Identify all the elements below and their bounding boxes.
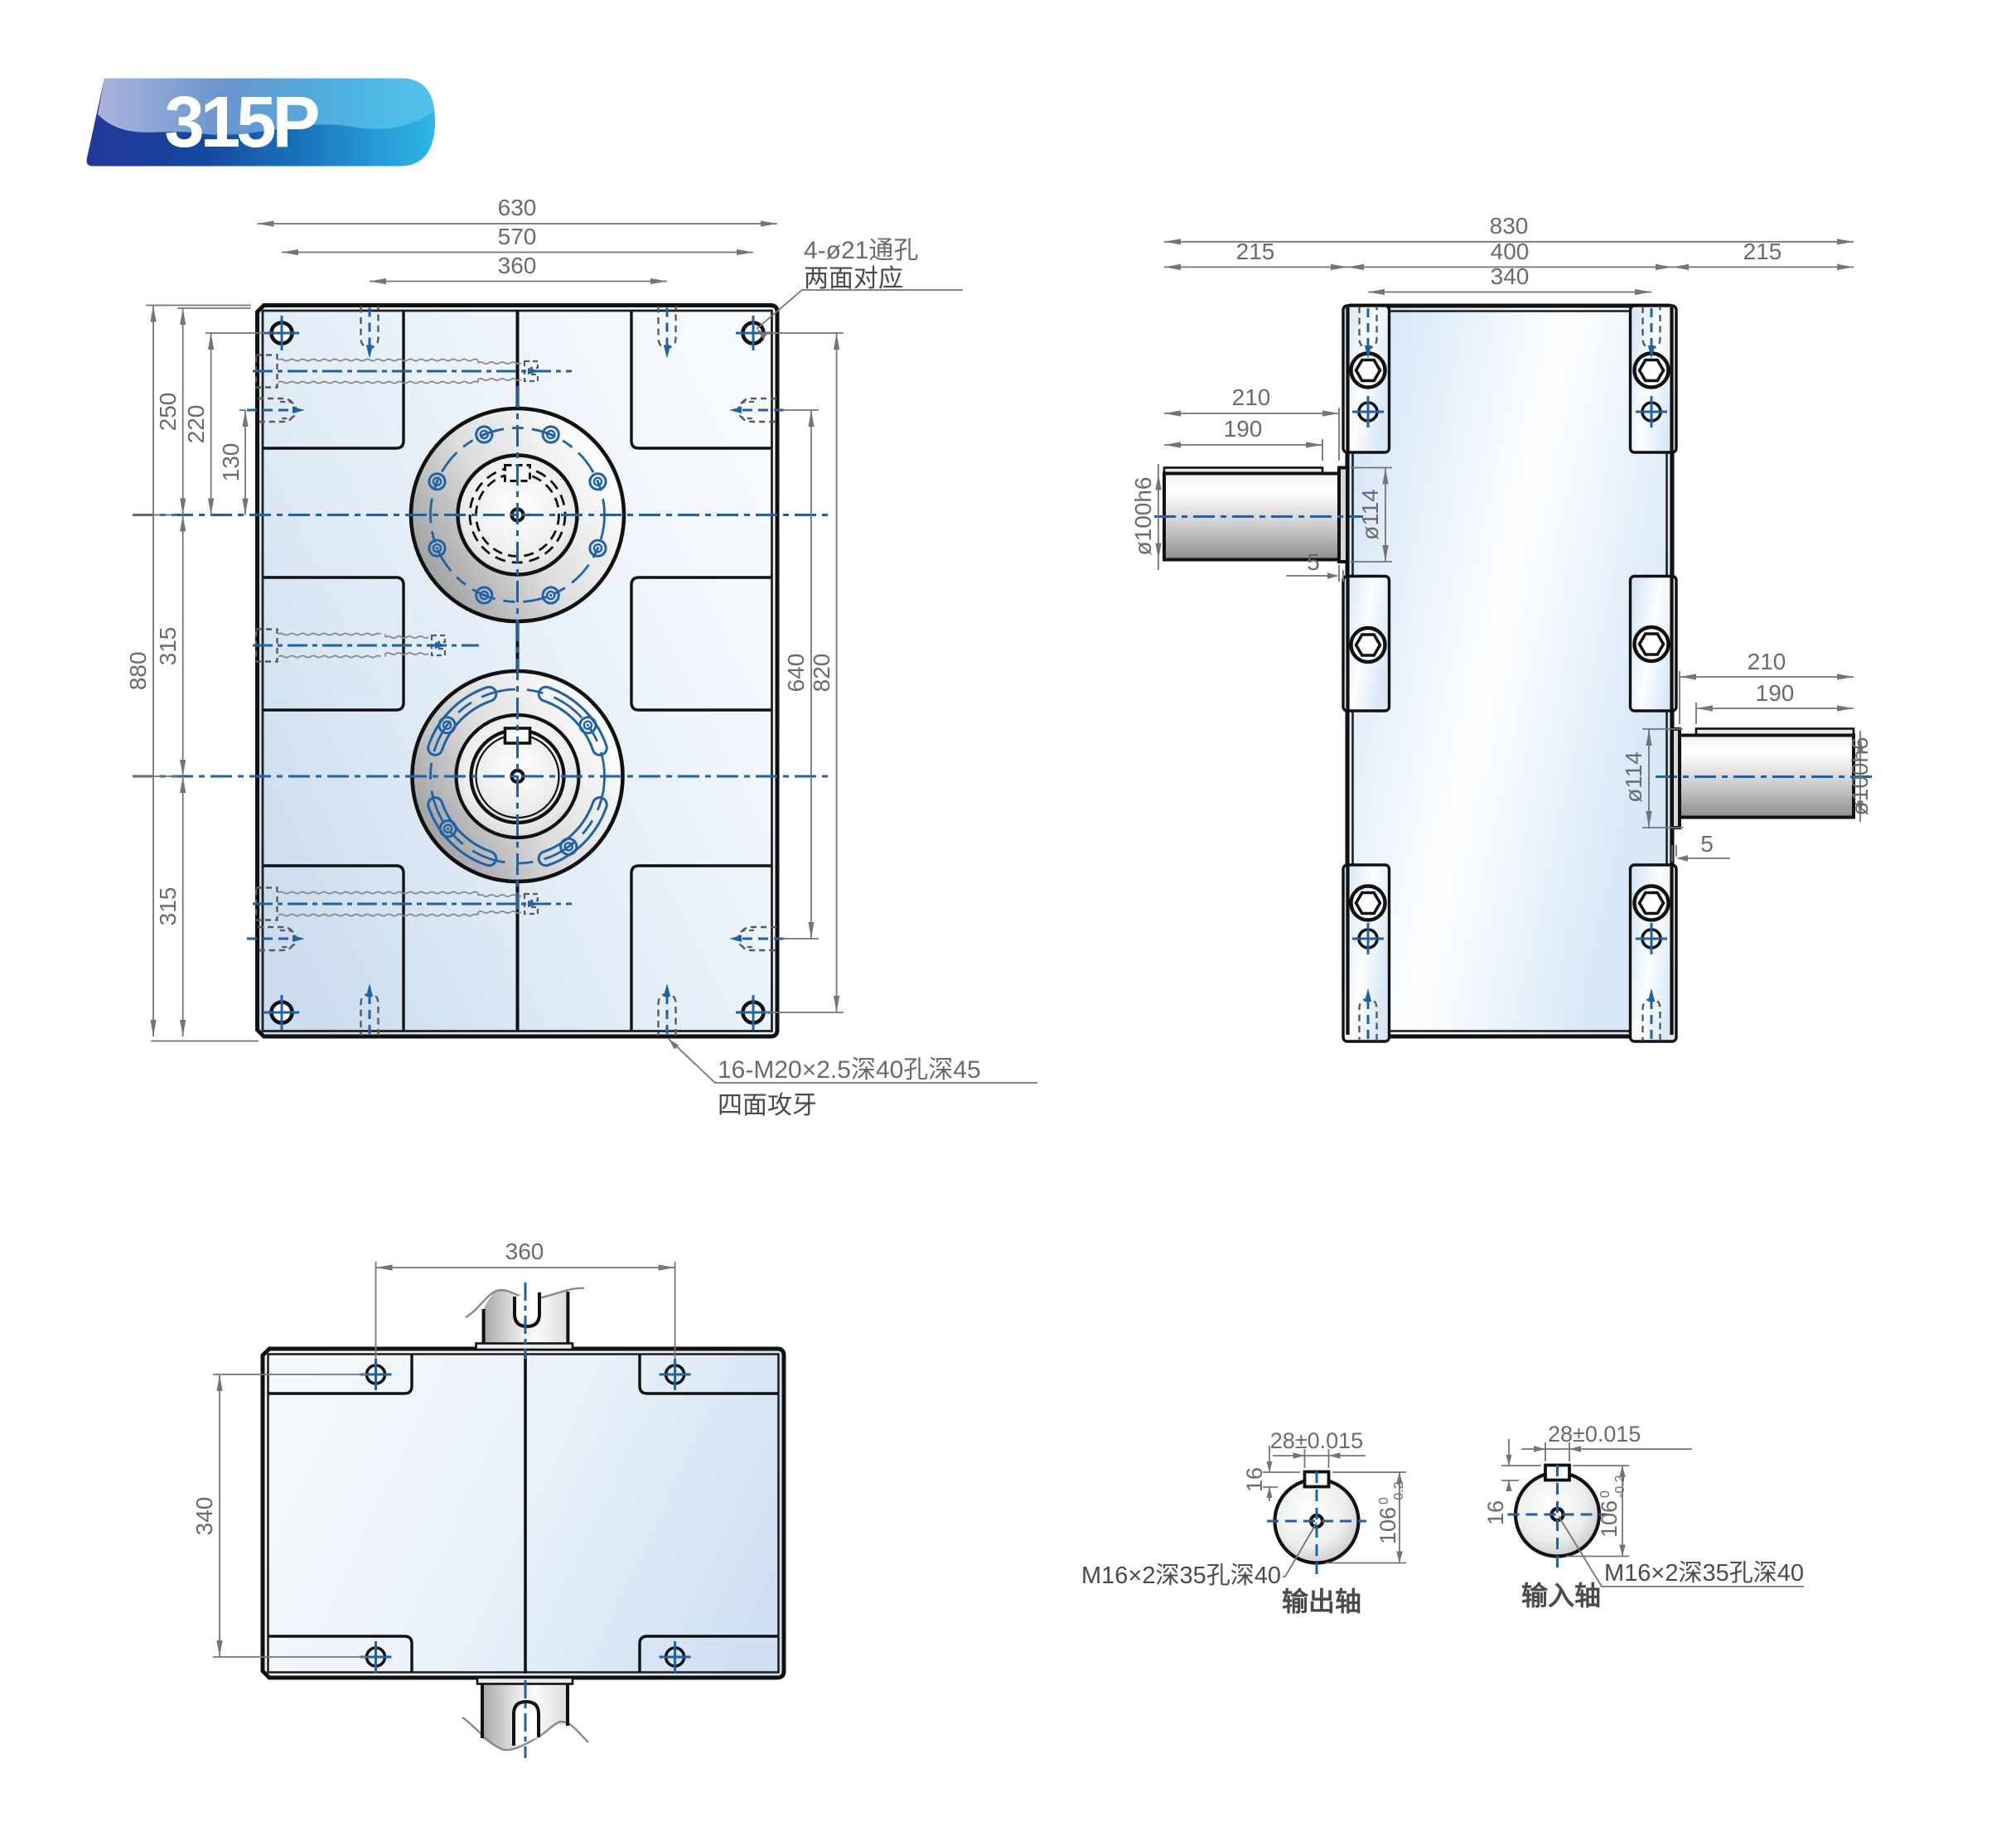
svg-text:-0.2: -0.2 <box>1392 1481 1406 1505</box>
svg-text:570: 570 <box>498 224 537 249</box>
svg-text:ø100h6: ø100h6 <box>1130 477 1156 556</box>
svg-text:0: 0 <box>1598 1490 1612 1498</box>
svg-text:28±0.015: 28±0.015 <box>1270 1428 1363 1453</box>
svg-text:0: 0 <box>1377 1497 1391 1505</box>
svg-text:16-M20×2.5深40孔深45: 16-M20×2.5深40孔深45 <box>718 1056 981 1084</box>
svg-text:210: 210 <box>1232 384 1271 410</box>
svg-text:106: 106 <box>1375 1507 1400 1544</box>
svg-text:880: 880 <box>125 651 151 690</box>
svg-text:315: 315 <box>155 887 181 926</box>
svg-text:ø114: ø114 <box>1621 751 1646 803</box>
svg-text:215: 215 <box>1236 239 1275 264</box>
svg-text:360: 360 <box>505 1239 544 1264</box>
svg-text:输出轴: 输出轴 <box>1282 1587 1361 1616</box>
svg-text:340: 340 <box>191 1497 217 1536</box>
svg-text:5: 5 <box>1700 831 1714 857</box>
svg-text:130: 130 <box>218 443 244 482</box>
svg-text:4-ø21通孔: 4-ø21通孔 <box>804 237 918 264</box>
svg-text:-0.2: -0.2 <box>1613 1475 1627 1498</box>
svg-text:830: 830 <box>1490 213 1529 239</box>
svg-text:315: 315 <box>155 627 181 666</box>
svg-text:16: 16 <box>1483 1500 1508 1525</box>
svg-text:28±0.015: 28±0.015 <box>1548 1422 1641 1447</box>
svg-text:215: 215 <box>1743 239 1782 264</box>
svg-text:106: 106 <box>1597 1500 1622 1538</box>
svg-text:M16×2深35孔深40: M16×2深35孔深40 <box>1604 1560 1804 1587</box>
svg-text:输入轴: 输入轴 <box>1521 1581 1601 1611</box>
svg-text:两面对应: 两面对应 <box>804 265 903 292</box>
svg-text:ø114: ø114 <box>1357 489 1383 540</box>
svg-text:四面攻牙: 四面攻牙 <box>718 1092 817 1119</box>
svg-text:190: 190 <box>1224 416 1263 442</box>
svg-text:400: 400 <box>1491 239 1530 264</box>
svg-text:360: 360 <box>498 253 537 278</box>
svg-text:250: 250 <box>155 393 181 432</box>
svg-text:ø100h6: ø100h6 <box>1847 737 1873 816</box>
svg-text:190: 190 <box>1756 680 1795 706</box>
svg-text:630: 630 <box>498 195 537 220</box>
svg-text:16: 16 <box>1242 1467 1267 1492</box>
svg-text:210: 210 <box>1748 649 1786 674</box>
svg-text:5: 5 <box>1307 549 1320 575</box>
svg-text:M16×2深35孔深40: M16×2深35孔深40 <box>1081 1563 1281 1589</box>
svg-text:220: 220 <box>183 405 209 444</box>
svg-text:340: 340 <box>1491 263 1530 289</box>
svg-text:315P: 315P <box>164 82 318 162</box>
svg-text:640: 640 <box>783 654 809 693</box>
svg-text:820: 820 <box>809 654 834 693</box>
